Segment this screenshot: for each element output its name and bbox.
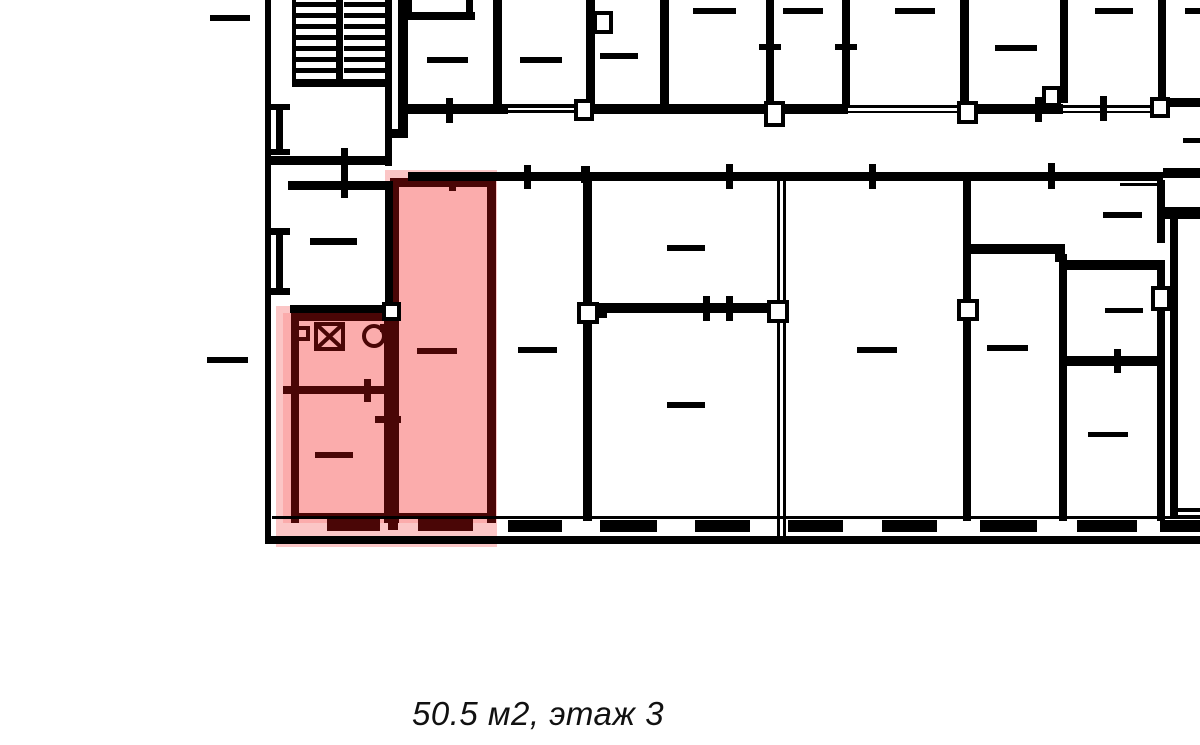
room-dash bbox=[315, 452, 353, 458]
sink-icon bbox=[1044, 88, 1059, 105]
floor-plan-image: 50.5 м2, этаж 3 bbox=[0, 0, 1200, 745]
caption: 50.5 м2, этаж 3 bbox=[412, 695, 832, 733]
stairwell bbox=[292, 0, 391, 87]
floor-plan bbox=[0, 0, 1200, 745]
junction-boxes bbox=[384, 99, 1169, 322]
room-dash bbox=[417, 348, 457, 354]
sink-icon bbox=[595, 13, 611, 32]
